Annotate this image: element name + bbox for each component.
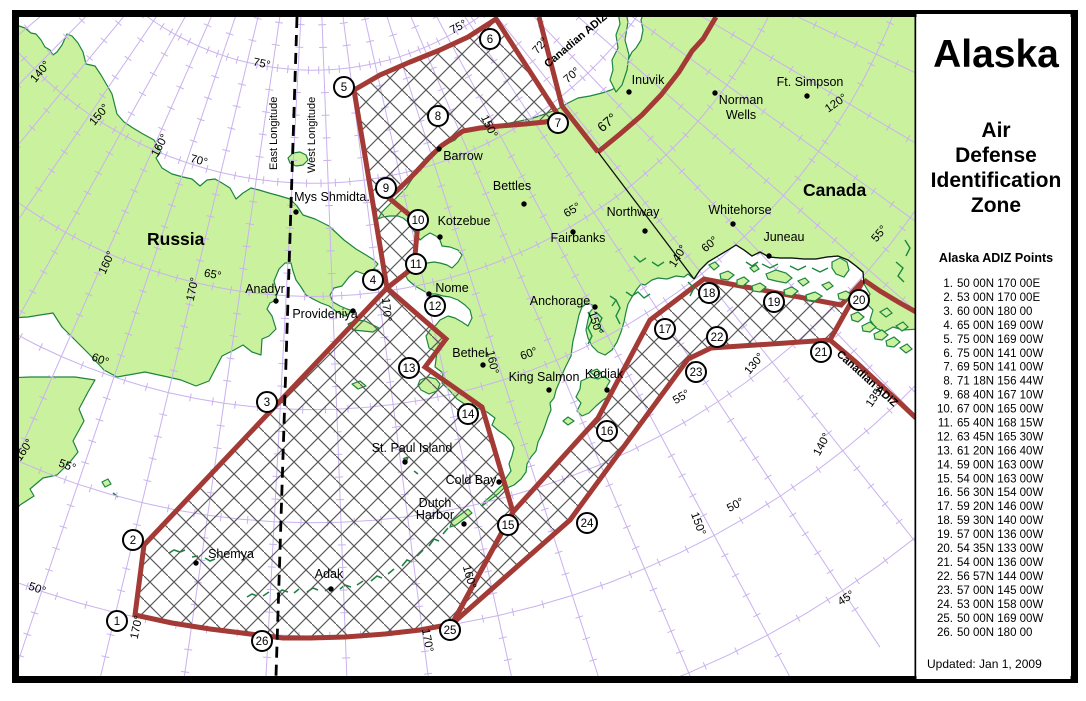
svg-text:23: 23 (690, 367, 703, 379)
svg-text:2.: 2. (943, 292, 953, 304)
svg-text:25.: 25. (937, 613, 953, 625)
svg-text:9.: 9. (943, 390, 953, 402)
svg-text:20.: 20. (937, 543, 953, 555)
svg-text:1.: 1. (943, 278, 953, 290)
svg-text:22.: 22. (937, 571, 953, 583)
svg-text:Defense: Defense (955, 144, 1037, 167)
svg-text:Provideniya: Provideniya (292, 307, 357, 321)
svg-text:West Longitude: West Longitude (306, 97, 318, 173)
svg-text:56 30N 154 00W: 56 30N 154 00W (957, 487, 1043, 499)
svg-text:Zone: Zone (971, 194, 1021, 217)
svg-text:69 50N 141 00W: 69 50N 141 00W (957, 362, 1043, 374)
svg-text:54 00N 163 00W: 54 00N 163 00W (957, 473, 1043, 485)
svg-text:Alaska: Alaska (933, 33, 1059, 76)
svg-text:65 00N 169 00W: 65 00N 169 00W (957, 320, 1043, 332)
svg-text:50 00N 180 00: 50 00N 180 00 (957, 627, 1032, 639)
svg-text:Kodiak: Kodiak (585, 367, 624, 381)
svg-text:7: 7 (555, 118, 561, 130)
svg-text:St. Paul Island: St. Paul Island (372, 441, 453, 455)
svg-text:18: 18 (703, 288, 716, 300)
svg-text:11.: 11. (938, 418, 953, 430)
svg-text:53 00N 158 00W: 53 00N 158 00W (957, 599, 1043, 611)
svg-text:59 30N 140 00W: 59 30N 140 00W (957, 515, 1043, 527)
svg-text:53 00N 170 00E: 53 00N 170 00E (957, 292, 1040, 304)
svg-text:Cold Bay: Cold Bay (446, 473, 497, 487)
svg-text:5.: 5. (943, 334, 953, 346)
svg-text:Mys Shmidta.: Mys Shmidta. (294, 190, 370, 204)
svg-text:Norman: Norman (719, 93, 764, 107)
svg-text:Inuvik: Inuvik (632, 73, 665, 87)
svg-text:23.: 23. (937, 585, 953, 597)
svg-text:9: 9 (383, 183, 389, 195)
svg-text:75 00N 141 00W: 75 00N 141 00W (957, 348, 1043, 360)
svg-text:Shemya: Shemya (208, 547, 254, 561)
svg-text:60 00N 180 00: 60 00N 180 00 (957, 306, 1032, 318)
svg-text:10: 10 (412, 215, 425, 227)
svg-text:Updated: Jan 1, 2009: Updated: Jan 1, 2009 (927, 657, 1042, 671)
svg-text:50 00N 170 00E: 50 00N 170 00E (957, 278, 1040, 290)
svg-text:15.: 15. (937, 473, 953, 485)
svg-text:8.: 8. (943, 376, 953, 388)
svg-text:Northway: Northway (607, 205, 661, 219)
svg-text:8: 8 (435, 111, 441, 123)
svg-text:1: 1 (114, 616, 120, 628)
svg-text:26: 26 (256, 636, 269, 648)
svg-text:17.: 17. (937, 501, 953, 513)
svg-text:61 20N 166 40W: 61 20N 166 40W (957, 445, 1043, 457)
svg-text:2: 2 (130, 535, 136, 547)
svg-text:16.: 16. (937, 487, 953, 499)
svg-text:14: 14 (462, 409, 475, 421)
svg-text:Fairbanks: Fairbanks (551, 231, 606, 245)
svg-text:6: 6 (487, 34, 493, 46)
svg-text:11: 11 (410, 259, 422, 271)
svg-text:Identification: Identification (931, 169, 1062, 192)
svg-text:King Salmon: King Salmon (509, 370, 580, 384)
svg-text:Ft. Simpson: Ft. Simpson (777, 75, 844, 89)
svg-text:Bettles: Bettles (493, 179, 531, 193)
svg-text:65 40N 168 15W: 65 40N 168 15W (957, 418, 1043, 430)
svg-text:5: 5 (341, 82, 347, 94)
svg-text:20: 20 (853, 295, 866, 307)
svg-text:15: 15 (502, 520, 515, 532)
svg-text:Russia: Russia (147, 229, 205, 249)
svg-text:12.: 12. (937, 431, 953, 443)
svg-text:54 35N 133 00W: 54 35N 133 00W (957, 543, 1043, 555)
svg-text:Adak: Adak (315, 567, 344, 581)
svg-text:71 18N 156 44W: 71 18N 156 44W (957, 376, 1043, 388)
svg-text:4: 4 (370, 275, 377, 287)
svg-text:4.: 4. (943, 320, 953, 332)
svg-text:Wells: Wells (726, 108, 756, 122)
svg-text:Anchorage: Anchorage (530, 294, 591, 308)
svg-text:13.: 13. (937, 445, 953, 457)
svg-text:10.: 10. (937, 404, 953, 416)
svg-text:19.: 19. (937, 529, 953, 541)
svg-text:54 00N 136 00W: 54 00N 136 00W (957, 557, 1043, 569)
svg-text:Whitehorse: Whitehorse (708, 203, 771, 217)
svg-text:19: 19 (768, 297, 781, 309)
svg-text:57 00N 145 00W: 57 00N 145 00W (957, 585, 1043, 597)
svg-text:59 20N 146 00W: 59 20N 146 00W (957, 501, 1043, 513)
svg-text:50 00N 169 00W: 50 00N 169 00W (957, 613, 1043, 625)
svg-text:Alaska ADIZ Points: Alaska ADIZ Points (939, 251, 1053, 265)
svg-text:21: 21 (815, 347, 828, 359)
svg-text:26.: 26. (937, 627, 953, 639)
svg-text:Air: Air (981, 119, 1010, 142)
svg-text:Barrow: Barrow (443, 149, 484, 163)
svg-text:12: 12 (429, 301, 442, 313)
svg-text:18.: 18. (937, 515, 953, 527)
svg-text:Harbor: Harbor (416, 508, 454, 522)
svg-text:170°: 170° (379, 297, 393, 322)
svg-text:63 45N 165 30W: 63 45N 165 30W (957, 431, 1043, 443)
svg-text:24.: 24. (937, 599, 953, 611)
svg-text:East Longitude: East Longitude (268, 97, 280, 170)
svg-text:3.: 3. (943, 306, 953, 318)
svg-text:3: 3 (264, 397, 270, 409)
svg-text:Kotzebue: Kotzebue (438, 214, 491, 228)
svg-text:57 00N 136 00W: 57 00N 136 00W (957, 529, 1043, 541)
svg-text:17: 17 (659, 324, 672, 336)
svg-text:6.: 6. (943, 348, 953, 360)
svg-text:Juneau: Juneau (763, 230, 804, 244)
svg-text:59 00N 163 00W: 59 00N 163 00W (957, 459, 1043, 471)
svg-text:68 40N 167 10W: 68 40N 167 10W (957, 390, 1043, 402)
svg-text:16: 16 (601, 426, 614, 438)
svg-text:14.: 14. (937, 459, 953, 471)
svg-text:Bethel: Bethel (452, 346, 487, 360)
svg-text:Nome: Nome (435, 281, 468, 295)
svg-text:25: 25 (444, 625, 457, 637)
svg-text:56 57N 144 00W: 56 57N 144 00W (957, 571, 1043, 583)
svg-text:67 00N 165 00W: 67 00N 165 00W (957, 404, 1043, 416)
svg-text:21.: 21. (937, 557, 953, 569)
svg-text:22: 22 (711, 332, 724, 344)
svg-text:75 00N 169 00W: 75 00N 169 00W (957, 334, 1043, 346)
svg-text:Canada: Canada (803, 180, 866, 200)
svg-text:13: 13 (403, 363, 416, 375)
svg-text:7.: 7. (943, 362, 953, 374)
svg-text:24: 24 (581, 518, 594, 530)
svg-text:Anadyr: Anadyr (245, 282, 285, 296)
